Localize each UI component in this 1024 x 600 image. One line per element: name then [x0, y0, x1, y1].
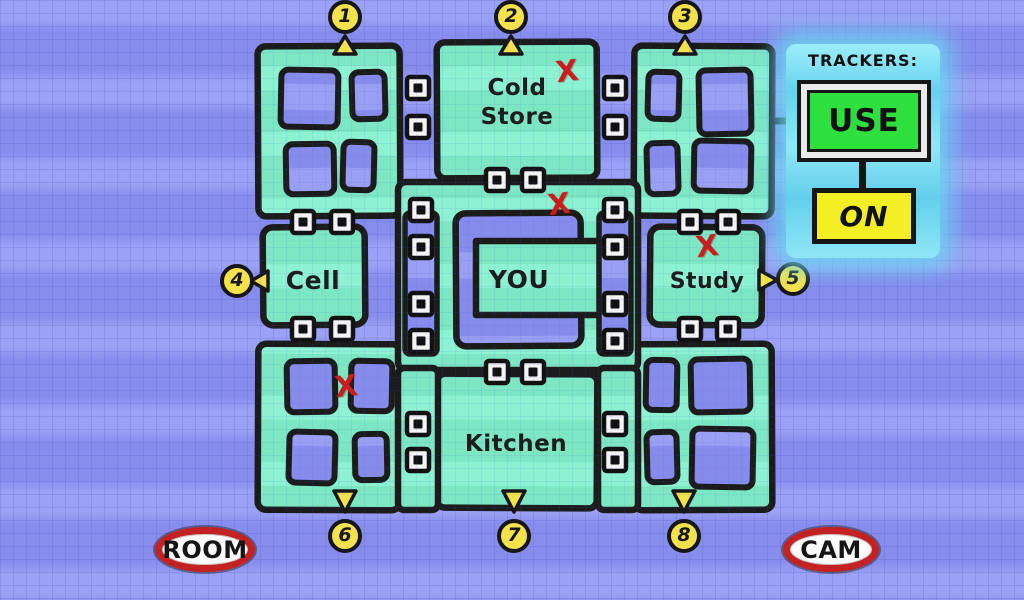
- exit-button-3[interactable]: 3: [668, 0, 702, 34]
- door-marker-icon: [604, 236, 626, 258]
- use-on-connector: [859, 161, 866, 189]
- door-marker-icon: [486, 169, 508, 191]
- door-marker-icon: [407, 413, 429, 435]
- room-you-shape: [476, 241, 604, 315]
- door-marker-icon: [604, 293, 626, 315]
- door-marker-icon: [717, 211, 739, 233]
- corridor-right-shape: [598, 368, 638, 510]
- door-marker-icon: [604, 330, 626, 352]
- door-marker-icon: [522, 169, 544, 191]
- exit-button-4[interactable]: 4: [220, 264, 254, 298]
- door-marker-icon: [410, 199, 432, 221]
- exit-button-7[interactable]: 7: [497, 519, 531, 553]
- door-marker-icon: [522, 361, 544, 383]
- door-marker-icon: [410, 330, 432, 352]
- door-marker-icon: [410, 236, 432, 258]
- door-marker-icon: [717, 318, 739, 340]
- door-marker-icon: [292, 318, 314, 340]
- exit-button-6[interactable]: 6: [328, 519, 362, 553]
- door-marker-icon: [679, 318, 701, 340]
- door-marker-icon: [410, 293, 432, 315]
- door-marker-icon: [331, 211, 353, 233]
- exit-button-5[interactable]: 5: [776, 262, 810, 296]
- door-marker-icon: [486, 361, 508, 383]
- door-marker-icon: [292, 211, 314, 233]
- door-marker-icon: [407, 116, 429, 138]
- room-cell-shape: [263, 227, 366, 326]
- door-marker-icon: [604, 199, 626, 221]
- door-marker-icon: [407, 77, 429, 99]
- room-study-shape: [650, 227, 763, 326]
- on-button[interactable]: ON: [812, 188, 916, 244]
- door-marker-icon: [604, 116, 626, 138]
- door-marker-icon: [407, 449, 429, 471]
- exit-button-2[interactable]: 2: [494, 0, 528, 34]
- door-marker-icon: [604, 413, 626, 435]
- triangle-arrow-icon: [759, 270, 777, 290]
- room-button[interactable]: ROOM: [155, 527, 255, 572]
- exit-button-8[interactable]: 8: [667, 519, 701, 553]
- use-button[interactable]: USE: [797, 80, 931, 162]
- cam-button[interactable]: CAM: [783, 527, 879, 572]
- room-cold-store-shape: [437, 42, 598, 179]
- use-button-label: USE: [807, 90, 921, 152]
- corridor-left-shape: [398, 368, 438, 510]
- trackers-title: TRACKERS:: [786, 51, 940, 70]
- exit-button-1[interactable]: 1: [328, 0, 362, 34]
- game-screen: Cold Store Cell YOU Study Kitchen X X X …: [0, 0, 1024, 600]
- door-marker-icon: [679, 211, 701, 233]
- room-kitchen-shape: [437, 374, 598, 509]
- door-marker-icon: [331, 318, 353, 340]
- door-marker-icon: [604, 449, 626, 471]
- door-marker-icon: [604, 77, 626, 99]
